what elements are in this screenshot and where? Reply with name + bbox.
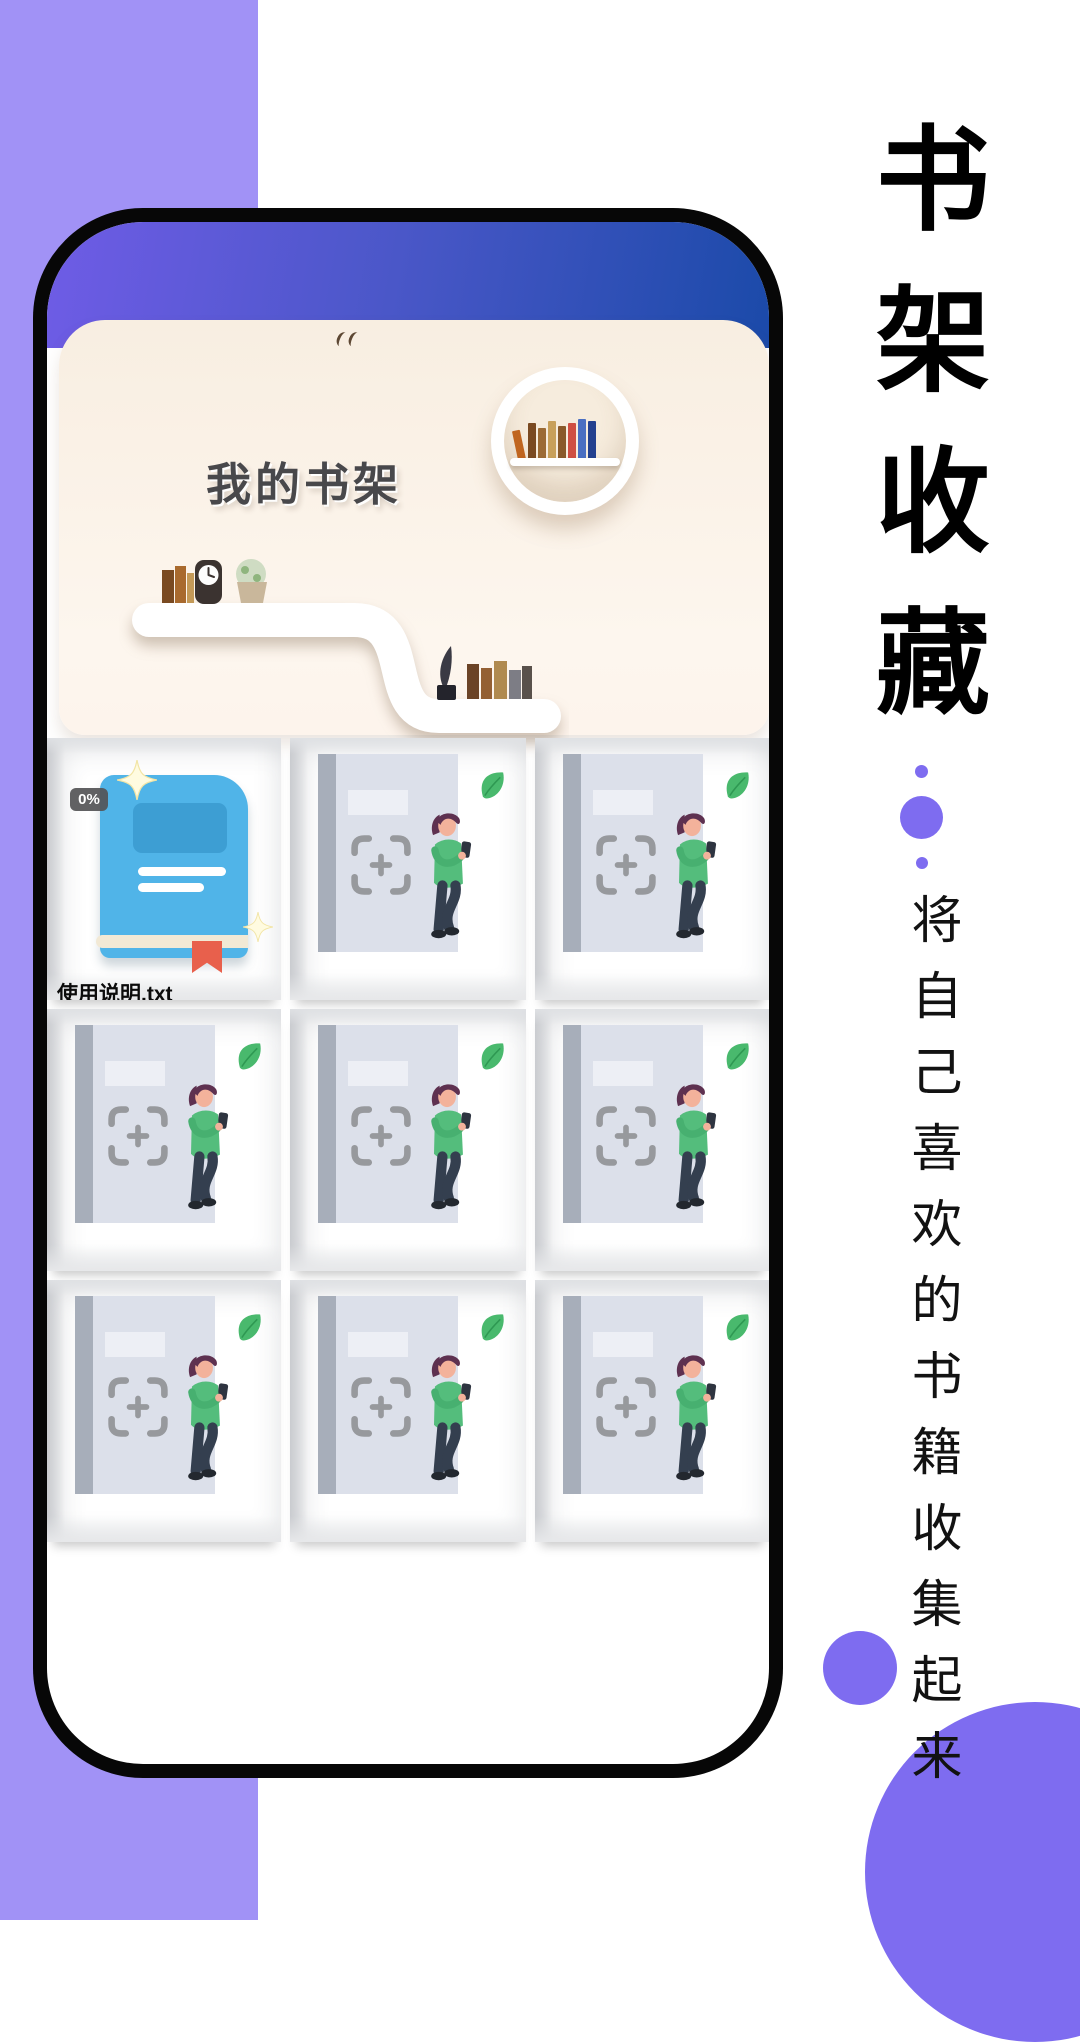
round-shelf-books <box>518 417 614 459</box>
leaf-icon <box>237 1041 264 1072</box>
person-reading-icon <box>665 1346 721 1496</box>
deco-dot-small-top <box>915 765 928 778</box>
book-cell-file[interactable]: 0% 使用说明.txt <box>47 738 281 1000</box>
person-reading-icon <box>420 1075 476 1225</box>
round-shelf-icon <box>491 367 639 515</box>
quote-marks-icon <box>337 332 371 352</box>
curved-shelf-icon <box>119 548 569 763</box>
deco-dot-large <box>900 796 943 839</box>
person-reading-icon <box>177 1075 233 1225</box>
leaf-icon <box>725 770 752 801</box>
book-cover-icon <box>100 775 248 958</box>
empty-book-slot[interactable] <box>47 1280 281 1542</box>
leaf-icon <box>725 1312 752 1343</box>
headline-char: 藏 <box>876 605 990 723</box>
bookshelf-hero-panel: 我的书架 <box>59 320 769 735</box>
phone-mockup: 我的书架 <box>33 208 783 1778</box>
empty-book-slot[interactable] <box>290 1009 526 1271</box>
headline-char: 收 <box>876 444 990 562</box>
add-book-icon <box>105 1103 171 1169</box>
bookshelf-grid: 0% 使用说明.txt <box>47 738 769 1542</box>
person-reading-icon <box>420 804 476 954</box>
add-book-icon <box>593 832 659 898</box>
leaf-icon <box>237 1312 264 1343</box>
empty-book-slot[interactable] <box>47 1009 281 1271</box>
person-reading-icon <box>665 804 721 954</box>
person-reading-icon <box>420 1346 476 1496</box>
file-name-label: 使用说明.txt <box>57 978 173 1000</box>
vertical-subtitle: 将自己喜欢的书籍收集起来 <box>894 893 968 1833</box>
empty-book-slot[interactable] <box>290 1280 526 1542</box>
add-book-icon <box>593 1374 659 1440</box>
deco-dot-small-bottom <box>916 857 928 869</box>
person-reading-icon <box>177 1346 233 1496</box>
progress-badge: 0% <box>70 788 108 811</box>
bookmark-ribbon-icon <box>192 941 222 973</box>
leaf-icon <box>480 1312 507 1343</box>
headline-char: 书 <box>876 122 990 240</box>
phone-screen: 我的书架 <box>47 222 769 1764</box>
add-book-icon <box>348 1103 414 1169</box>
add-book-icon <box>593 1103 659 1169</box>
sparkle-icon <box>243 912 273 942</box>
deco-circle-medium <box>823 1631 897 1705</box>
leaf-icon <box>725 1041 752 1072</box>
empty-book-slot[interactable] <box>535 738 769 1000</box>
add-book-icon <box>348 832 414 898</box>
add-book-icon <box>105 1374 171 1440</box>
add-book-icon <box>348 1374 414 1440</box>
person-reading-icon <box>665 1075 721 1225</box>
sparkle-icon <box>117 760 157 800</box>
empty-book-slot[interactable] <box>290 738 526 1000</box>
headline-char: 架 <box>876 283 990 401</box>
page-title: 我的书架 <box>119 448 489 513</box>
leaf-icon <box>480 770 507 801</box>
leaf-icon <box>480 1041 507 1072</box>
vertical-headline: 书 架 收 藏 <box>873 122 993 723</box>
empty-book-slot[interactable] <box>535 1280 769 1542</box>
empty-book-slot[interactable] <box>535 1009 769 1271</box>
